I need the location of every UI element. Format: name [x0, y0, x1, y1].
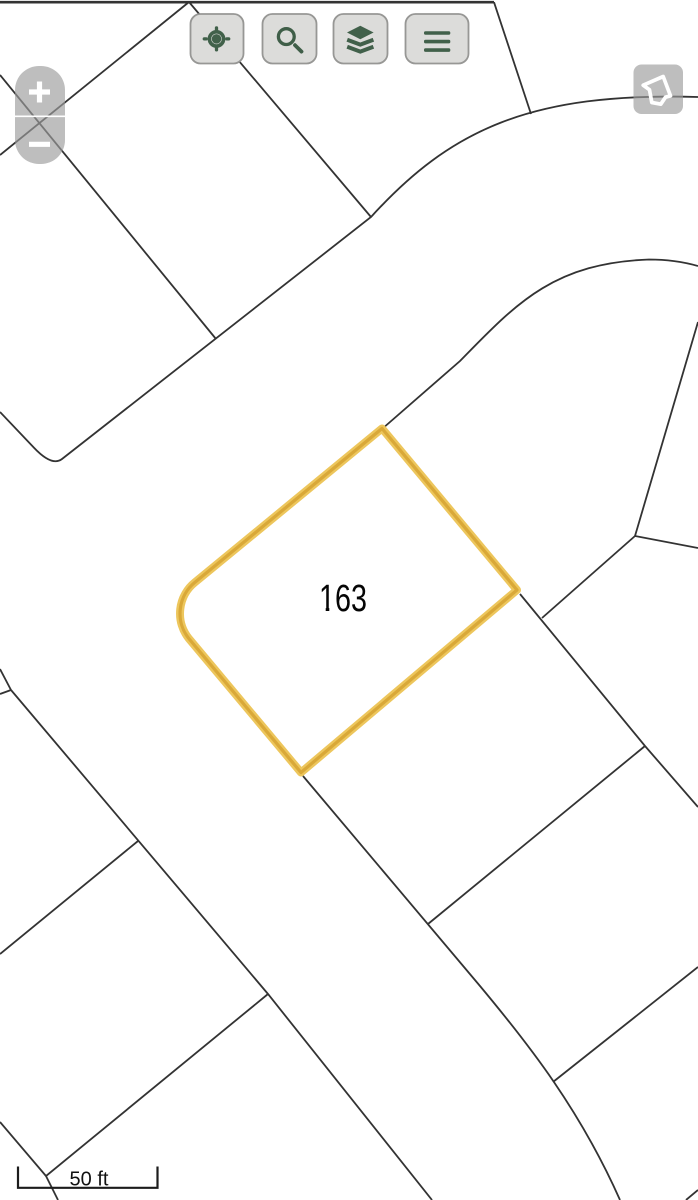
svg-text:50 ft: 50 ft	[70, 1168, 109, 1190]
svg-text:163: 163	[319, 578, 367, 620]
